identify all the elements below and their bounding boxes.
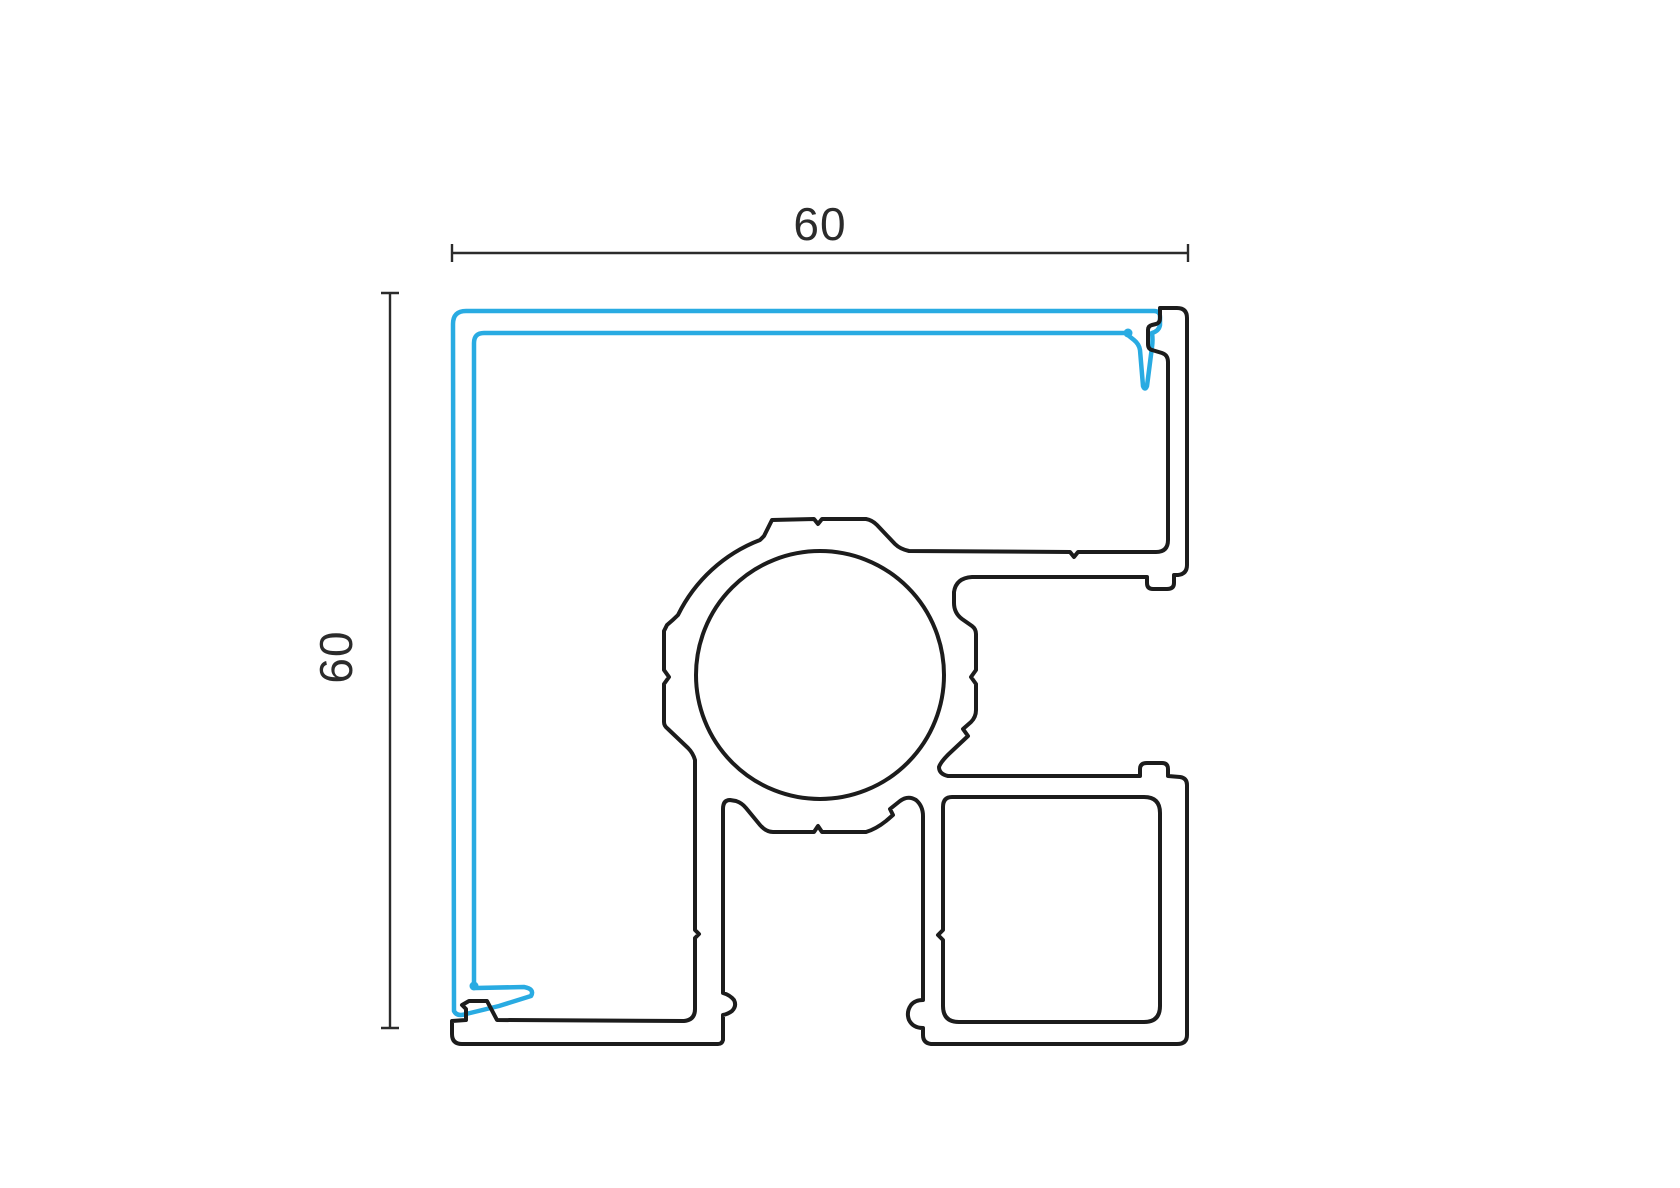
gasket-inner-line [474,333,1128,985]
aluminium-profile-body [452,308,1187,1044]
horizontal-dimension-label: 60 [793,198,846,250]
vertical-dimension-label: 60 [310,630,362,683]
vertical-dimension: 60 [310,293,399,1028]
drawing-canvas: 60 60 [0,0,1680,1188]
screw-channel-circle [696,551,944,799]
horizontal-dimension: 60 [452,198,1188,262]
gasket-end-dot-bottom [470,982,479,991]
profile-cross-section-drawing: 60 60 [0,0,1680,1188]
gasket-end-dot-top [1124,329,1133,338]
gasket-outer-line [453,311,1160,1015]
gasket-cover-angle [453,311,1160,1015]
square-chamber-cavity [938,797,1160,1022]
profile-outline [452,308,1187,1044]
